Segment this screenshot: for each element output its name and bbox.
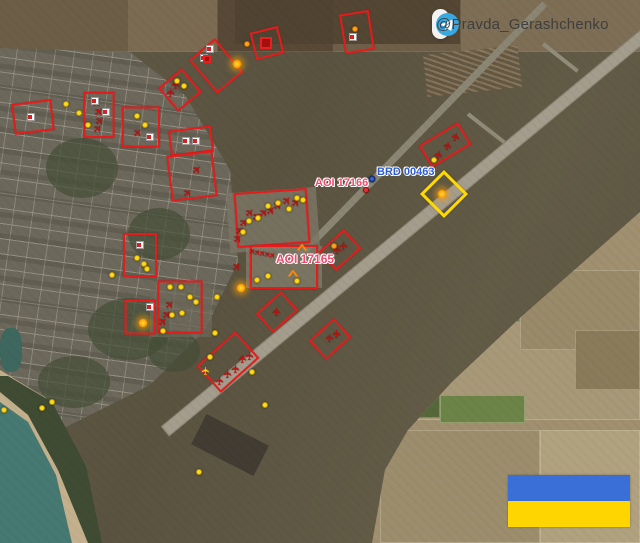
yellow-dot-marker [265, 273, 271, 279]
telegram-handle: @Pravda_Gerashchenko [436, 16, 609, 33]
aircraft-icon: ✈ [230, 260, 244, 274]
label-aoi-17166: AOI 17166 [315, 177, 368, 189]
aircraft-icon: ✈ [244, 351, 255, 361]
yellow-dot-marker [431, 157, 437, 163]
yellow-dot-marker [39, 405, 45, 411]
damage-marker-icon [146, 303, 154, 311]
damage-marker-icon [136, 241, 144, 249]
yellow-dot-marker [167, 284, 173, 290]
yellow-dot-marker [179, 310, 185, 316]
damage-marker-icon [192, 137, 200, 145]
damage-marker-icon [91, 97, 99, 105]
yellow-dot-marker [275, 200, 281, 206]
blue-point-marker [369, 176, 376, 183]
annotation-layer: ✈✈✈✈✈✈✈✈✈✈✈✈✈✈✈✈✈✈✈✈✈✈✈✈✈✈✈✈✈✈✈✈✈✈✈✈✈✈✈✈… [0, 0, 640, 543]
yellow-dot-marker [160, 328, 166, 334]
orange-dot-marker [244, 41, 250, 47]
damage-marker-icon [349, 33, 357, 41]
yellow-dot-marker [49, 399, 55, 405]
yellow-dot-marker [181, 83, 187, 89]
glow-dot-marker [438, 190, 447, 199]
glow-dot-marker [233, 60, 242, 69]
yellow-dot-marker [294, 278, 300, 284]
yellow-dot-marker [63, 101, 69, 107]
yellow-dot-marker [76, 110, 82, 116]
yellow-dot-marker [144, 266, 150, 272]
aircraft-icon: ✈ [338, 241, 349, 251]
annotated-satellite-image: ✈✈✈✈✈✈✈✈✈✈✈✈✈✈✈✈✈✈✈✈✈✈✈✈✈✈✈✈✈✈✈✈✈✈✈✈✈✈✈✈… [0, 0, 640, 543]
yellow-dot-marker [207, 354, 213, 360]
damage-marker-icon [182, 137, 190, 145]
label-aoi-17165: AOI 17165 [276, 252, 334, 266]
aircraft-icon: ✈ [331, 329, 342, 339]
damage-marker-icon [206, 45, 214, 53]
aircraft-icon: ✈ [165, 88, 177, 98]
yellow-dot-marker [214, 294, 220, 300]
target-annotation-box[interactable] [197, 331, 260, 393]
label-brd-00463: BRD 00463 [377, 166, 434, 178]
damage-marker-icon [146, 133, 154, 141]
red-square-marker [260, 37, 272, 49]
damage-marker-icon [27, 113, 35, 121]
yellow-dot-marker [174, 78, 180, 84]
yellow-dot-marker [169, 312, 175, 318]
yellow-dot-marker [187, 294, 193, 300]
yellow-dot-marker [246, 218, 252, 224]
yellow-dot-marker [265, 203, 271, 209]
yellow-dot-marker [240, 229, 246, 235]
yellow-dot-marker [1, 407, 7, 413]
red-square-marker [203, 55, 211, 63]
glow-dot-marker [139, 319, 148, 328]
yellow-dot-marker [193, 299, 199, 305]
yellow-dot-marker [254, 277, 260, 283]
target-annotation-box[interactable] [122, 107, 160, 148]
flag-yellow-stripe [508, 501, 630, 527]
destroyed-aircraft-icon: ✈ [200, 366, 211, 376]
target-annotation-box[interactable] [339, 10, 375, 54]
yellow-dot-marker [134, 255, 140, 261]
damage-marker-icon [102, 108, 110, 116]
yellow-dot-marker [286, 206, 292, 212]
aircraft-icon: ✈ [271, 307, 282, 317]
telegram-watermark[interactable]: @Pravda_Gerashchenko [432, 9, 449, 39]
yellow-dot-marker [262, 402, 268, 408]
yellow-dot-marker [300, 197, 306, 203]
yellow-dot-marker [178, 284, 184, 290]
glow-dot-marker [237, 284, 246, 293]
orange-dot-marker [352, 26, 358, 32]
orange-dot-marker [331, 243, 337, 249]
yellow-dot-marker [249, 369, 255, 375]
flag-blue-stripe [508, 475, 630, 501]
yellow-dot-marker [134, 113, 140, 119]
yellow-dot-marker [109, 272, 115, 278]
yellow-dot-marker [196, 469, 202, 475]
yellow-dot-marker [255, 215, 261, 221]
target-annotation-box[interactable] [123, 233, 157, 277]
yellow-dot-marker [142, 122, 148, 128]
yellow-dot-marker [85, 122, 91, 128]
aircraft-icon: ✈ [230, 364, 241, 374]
yellow-dot-marker [212, 330, 218, 336]
ukraine-flag [508, 475, 630, 527]
